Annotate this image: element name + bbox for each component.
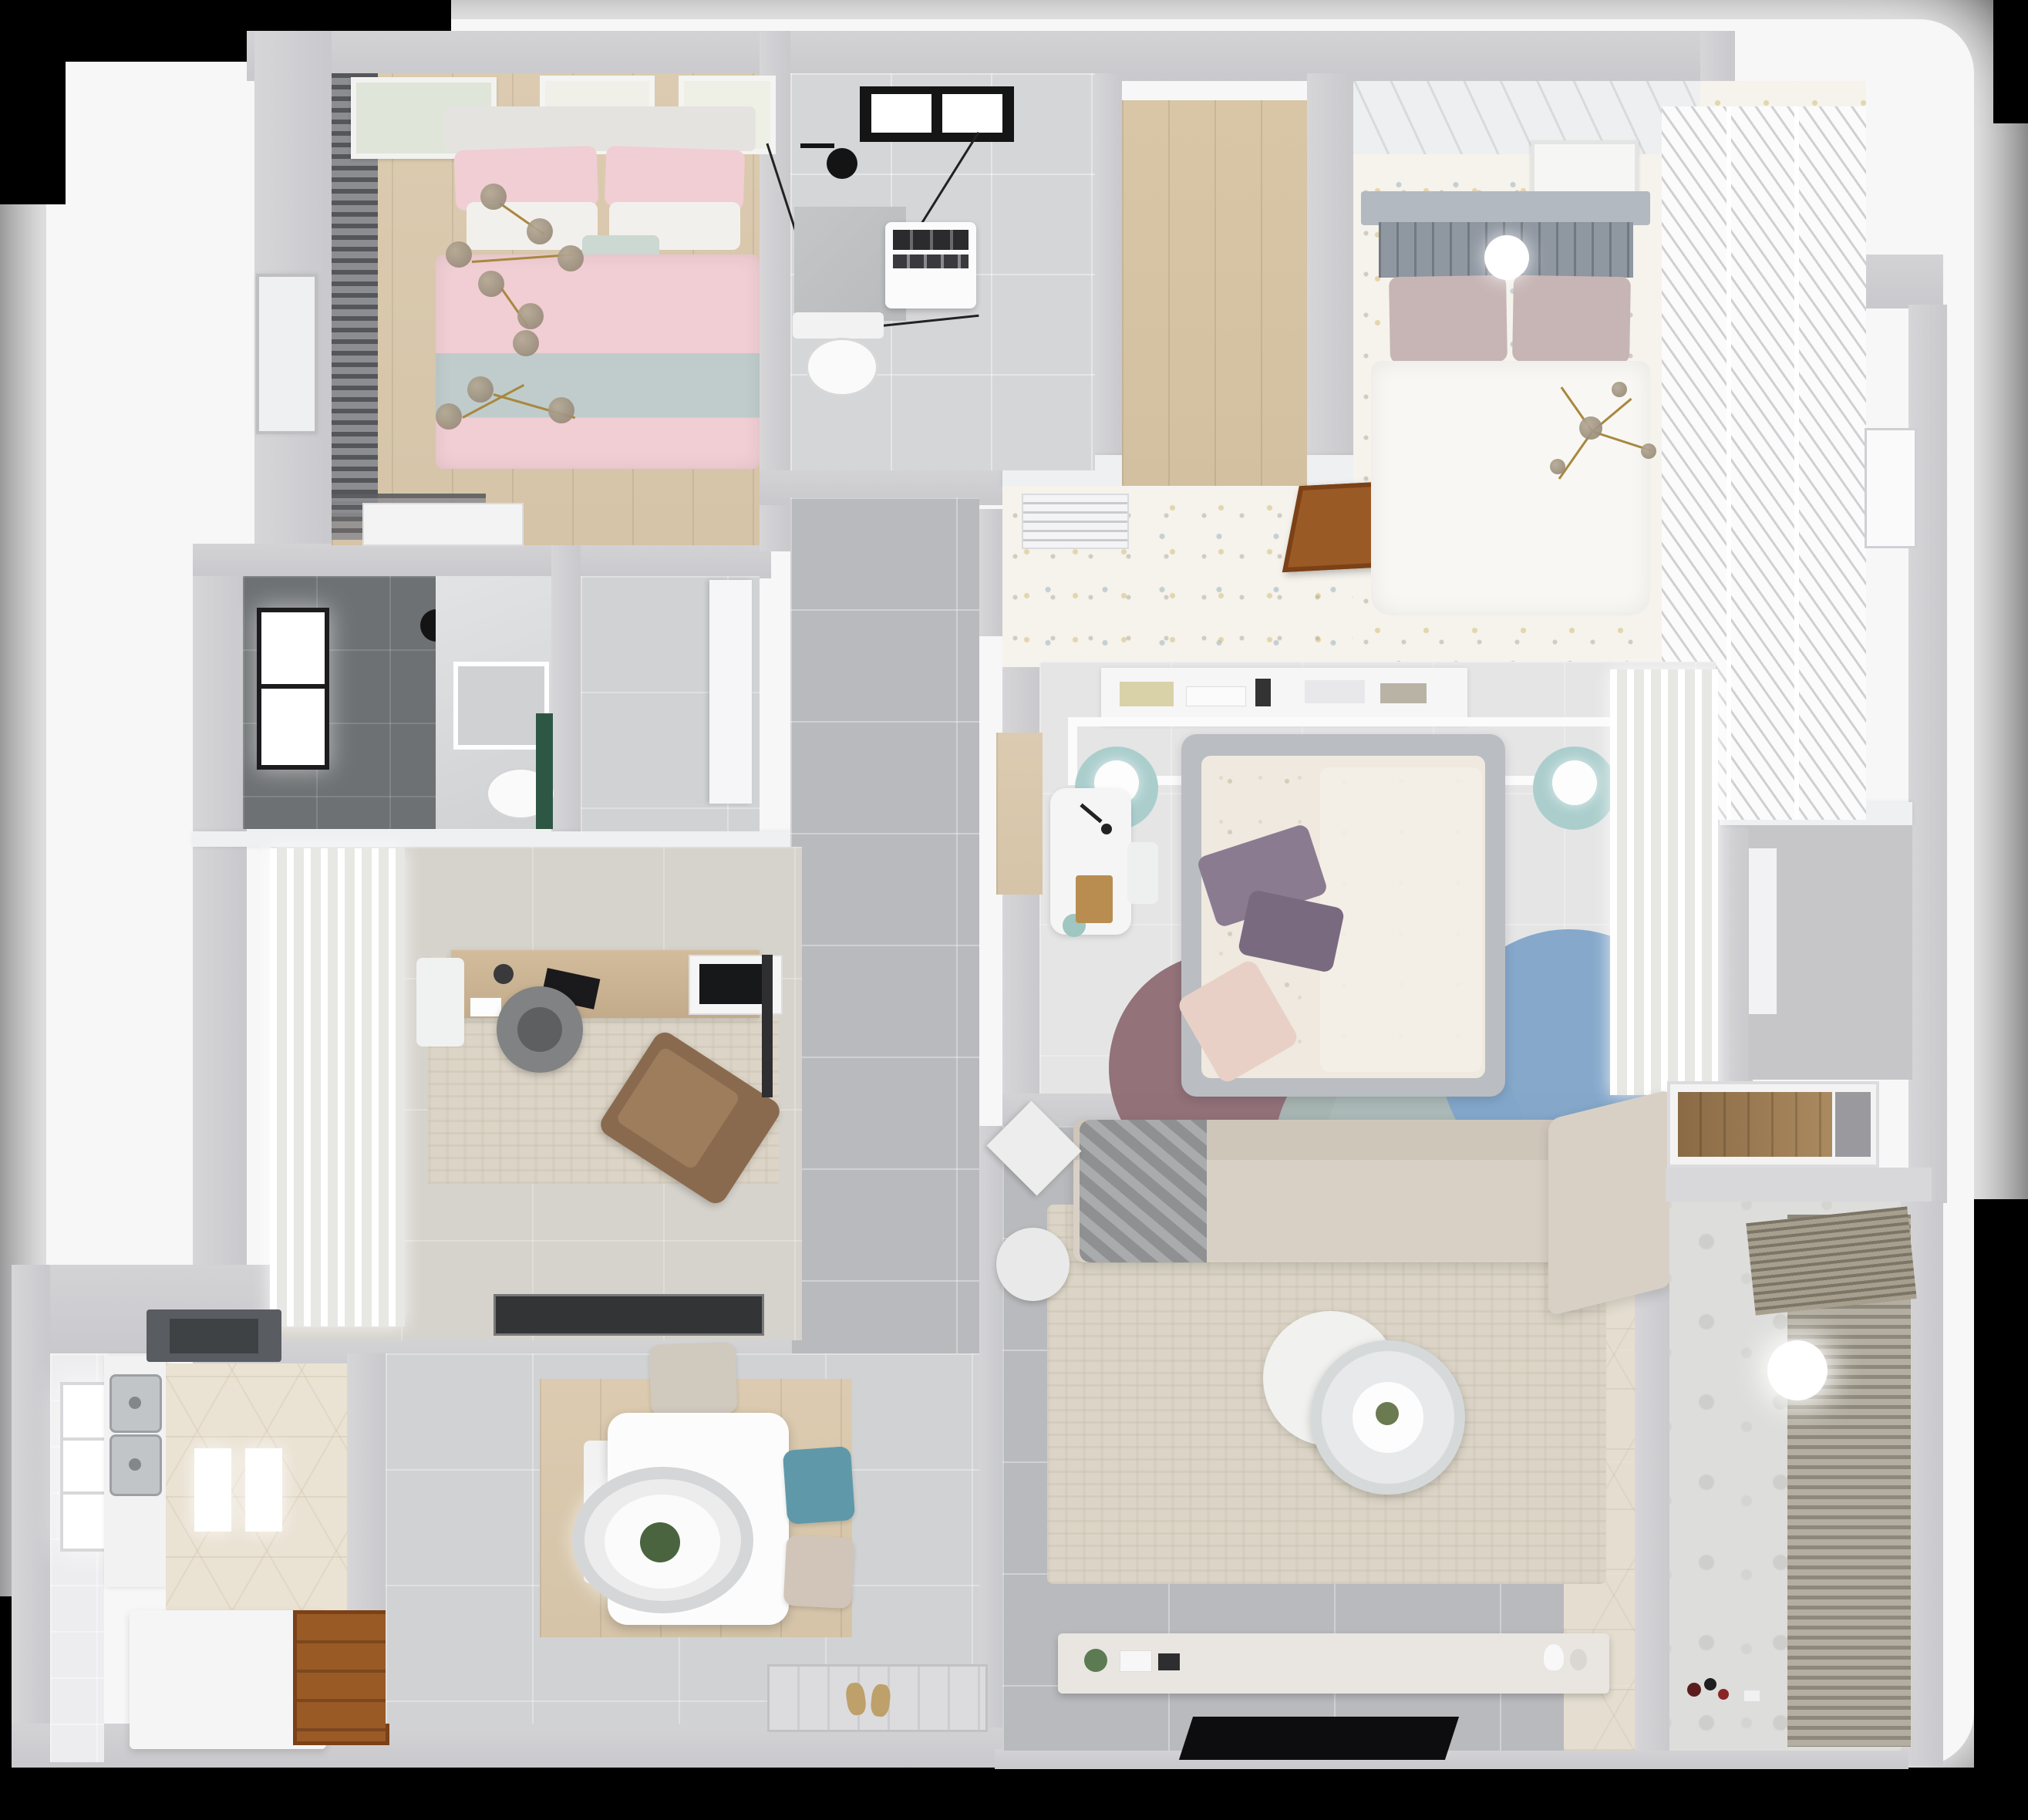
ceiling-light-reflection-1	[194, 1448, 231, 1532]
shower-head-icon	[827, 148, 857, 179]
room-hallway-floor	[790, 497, 979, 1357]
pillow-mauve-left	[1389, 275, 1508, 364]
bed-headboard	[443, 106, 756, 151]
ac-vent-icon	[1022, 494, 1129, 549]
sink-basin-1	[109, 1374, 162, 1433]
wood-shelf-gray-end	[1835, 1092, 1871, 1157]
wood-shelf-band	[1678, 1092, 1832, 1157]
study-curtain-wall	[270, 848, 405, 1326]
pillow-mauve-right	[1512, 275, 1631, 364]
desk-paper	[470, 998, 501, 1016]
toy-4	[1744, 1690, 1760, 1701]
wood-shelf-niche	[1667, 1081, 1879, 1168]
pendant-plant-centerpiece	[640, 1522, 680, 1562]
skylight-pane-right	[942, 94, 1002, 133]
pouf-lamp-right	[1552, 760, 1597, 805]
black-corner-top-right	[1993, 0, 2028, 123]
kitchen-wood-door-threshold	[293, 1610, 389, 1745]
wall-hall-corridor	[979, 509, 1002, 636]
console-plant	[1084, 1649, 1107, 1672]
dining-chair-beige	[783, 1535, 855, 1609]
pillow-pink-right	[605, 146, 746, 211]
washer-controls-2	[893, 254, 969, 268]
ceiling-light-reflection-2	[245, 1448, 282, 1532]
desk-dot	[1101, 824, 1112, 834]
desk-chair-pad	[416, 958, 464, 1046]
desk-cup	[494, 964, 514, 984]
wall-left-middle	[193, 544, 247, 1346]
console-box-white	[1120, 1650, 1152, 1672]
desk-wood-tray	[1076, 875, 1113, 923]
wall-bathmid-top	[193, 544, 559, 576]
black-edge-right	[1974, 1199, 2028, 1820]
black-edge-left-top	[0, 0, 66, 204]
tv-panel	[1179, 1717, 1459, 1760]
bathroom-mid-door	[709, 580, 752, 804]
coffee-table-decor-plant	[1376, 1402, 1399, 1425]
toy-2	[1704, 1678, 1716, 1690]
balcony-doorway	[1865, 428, 1917, 548]
media-console	[1058, 1633, 1609, 1694]
pillow-pink-left	[454, 146, 599, 211]
toy-3	[1718, 1689, 1729, 1700]
toilet-bowl	[806, 338, 878, 396]
coffee-table-main	[1311, 1340, 1465, 1495]
headboard-shelf	[1101, 668, 1467, 723]
range-hood-icon	[147, 1309, 281, 1362]
balcony-ceiling-light	[1767, 1340, 1828, 1400]
balcony-blind-top	[1746, 1206, 1916, 1315]
paneled-wall	[1353, 81, 1700, 154]
wall-study-top	[193, 831, 810, 847]
toy-1	[1687, 1683, 1701, 1697]
console-box-black	[1158, 1653, 1180, 1670]
pendant-lamp-oval	[572, 1467, 753, 1613]
wall-closet-right	[1307, 73, 1353, 505]
duvet-white	[1371, 361, 1650, 615]
room-closet-floor	[1122, 100, 1307, 501]
headboard-rail	[1361, 191, 1650, 225]
skylight-pane-left	[871, 94, 931, 133]
dresser	[362, 503, 524, 546]
sheer-wardrobe	[1610, 669, 1718, 1095]
sink-basin-2	[109, 1434, 162, 1496]
console-vase	[1544, 1644, 1564, 1670]
toilet-tank	[793, 312, 884, 339]
console-vase-2	[1570, 1649, 1587, 1670]
washer-controls	[893, 230, 969, 250]
wall-left-kitchen	[12, 1265, 50, 1766]
wall-bottom-right	[995, 1749, 1908, 1769]
utility-door-jamb	[1749, 848, 1777, 1014]
study-doormat	[494, 1294, 764, 1336]
study-shelf-edge	[762, 955, 773, 1097]
door-niche-left	[256, 274, 318, 434]
green-cabinet	[536, 713, 553, 829]
bedroom-middle-chair	[1127, 842, 1158, 904]
sofa-chaise	[1548, 1089, 1672, 1316]
pouf-teal-right	[1533, 747, 1616, 830]
bedroom-middle-entry-wood	[996, 733, 1043, 895]
balcony-upper-band	[1666, 1168, 1932, 1202]
ottoman-round	[996, 1228, 1070, 1301]
sphere-lamp-icon	[1484, 235, 1529, 280]
wall-closet-left	[1095, 73, 1122, 505]
dining-chair-teal	[783, 1446, 855, 1525]
wall-living-left	[975, 1126, 1002, 1727]
bathroom-mid-window	[257, 608, 329, 770]
floorplan-render-page: { "scene": { "type": "3d-floorplan-top-d…	[0, 0, 2028, 1820]
office-chair-icon	[497, 986, 583, 1073]
dining-chair-top	[648, 1342, 737, 1416]
sofa-throw-gray	[1080, 1120, 1207, 1262]
shower-tray-mid	[453, 662, 549, 750]
shower-arm	[800, 143, 834, 148]
black-band-bottom	[0, 1768, 2028, 1820]
bed-middle-duvet-fold	[1320, 767, 1482, 1072]
